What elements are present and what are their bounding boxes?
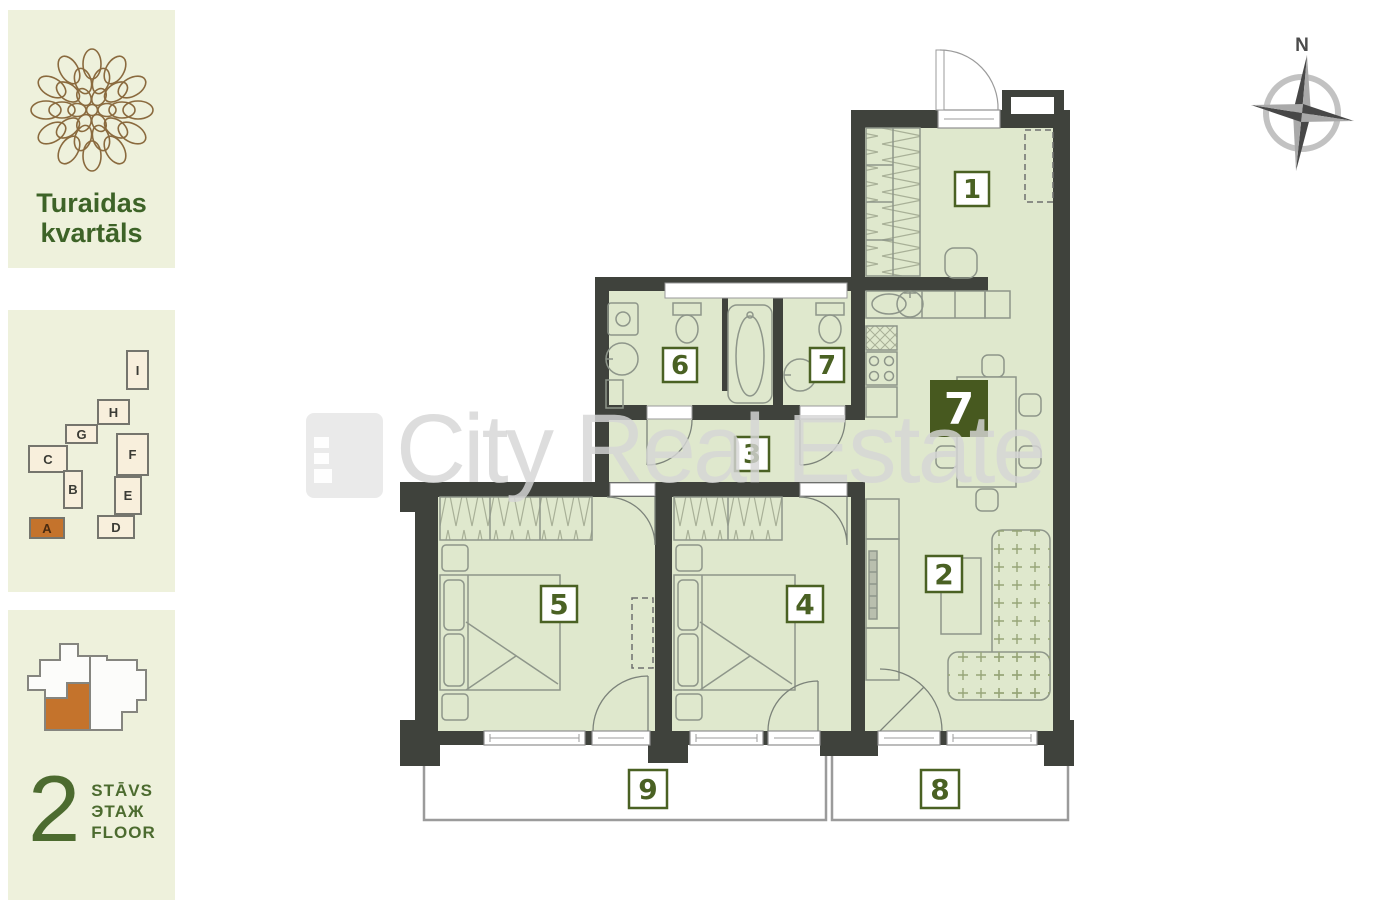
room-label-3: 3 [743, 440, 761, 470]
apartment-number-badge: 7 [930, 380, 988, 437]
room-label-6: 6 [671, 351, 689, 381]
room-label-8: 8 [930, 773, 949, 806]
compass-icon: N [1245, 25, 1365, 180]
pinecone-icon [8, 10, 175, 185]
dining-chair [1019, 394, 1041, 416]
dining-chair [936, 446, 958, 468]
kitchen-hob [866, 326, 897, 350]
site-block-e: E [114, 476, 142, 515]
watermark-logo-icon [306, 413, 383, 498]
wardrobe [440, 497, 592, 540]
site-block-c: C [28, 445, 68, 473]
wall-niche [665, 283, 847, 298]
site-block-a-highlighted: A [29, 517, 65, 539]
site-block-label: B [68, 482, 77, 497]
room-label-1: 1 [963, 175, 981, 205]
dining-chair [976, 489, 998, 511]
site-block-b: B [63, 470, 83, 509]
dining-chair [1019, 446, 1041, 468]
brand-panel: Turaidas kvartāls [8, 10, 175, 268]
site-block-label: D [111, 520, 120, 535]
north-label: N [1295, 35, 1309, 56]
site-block-i: I [126, 350, 149, 390]
room-label-9: 9 [638, 773, 657, 806]
floor-indicator: 2 STĀVS ЭТАЖ FLOOR [28, 770, 156, 847]
room-label-5: 5 [549, 588, 568, 621]
floor-word-lv: STĀVS [91, 780, 156, 801]
site-block-label: H [109, 405, 118, 420]
brand-line2: kvartāls [8, 218, 175, 248]
floor-plan: 1 6 7 3 5 4 2 9 8 7 [390, 20, 1110, 840]
site-block-label: C [43, 452, 52, 467]
entrance-door-leaf [936, 50, 944, 110]
balcony-9 [424, 745, 826, 820]
floor-indicator-panel: 2 STĀVS ЭТАЖ FLOOR [8, 610, 175, 900]
bed [674, 575, 795, 690]
room-label-4: 4 [795, 588, 814, 621]
room-label-7: 7 [818, 351, 836, 381]
tv-icon [869, 551, 877, 619]
room-label-2: 2 [934, 558, 953, 591]
site-block-h: H [97, 399, 130, 425]
apartment-number: 7 [944, 384, 975, 435]
site-block-label: A [42, 521, 51, 536]
brand-title: Turaidas kvartāls [8, 188, 175, 248]
site-block-d: D [97, 515, 135, 539]
sofa-cushions [948, 652, 1050, 700]
floor-word-en: FLOOR [91, 822, 156, 843]
site-plan-panel: I H G C B F E D A [8, 310, 175, 592]
floor-outline-icon [8, 610, 175, 760]
floor-plan-page: Turaidas kvartāls I H G C B F E D A 2 ST… [0, 0, 1383, 900]
site-block-label: F [129, 447, 137, 462]
site-block-f: F [116, 433, 149, 476]
floor-number: 2 [28, 770, 80, 847]
site-block-label: G [76, 427, 86, 442]
site-block-label: E [124, 488, 133, 503]
entry-niche-inner [1011, 97, 1054, 114]
brand-line1: Turaidas [8, 188, 175, 218]
dining-chair [982, 355, 1004, 377]
bedroom-4 [674, 497, 795, 720]
floor-words: STĀVS ЭТАЖ FLOOR [91, 780, 156, 847]
entrance-door-arc [940, 50, 998, 110]
site-block-g: G [65, 424, 98, 444]
site-block-label: I [136, 363, 140, 378]
floor-word-ru: ЭТАЖ [91, 801, 156, 822]
